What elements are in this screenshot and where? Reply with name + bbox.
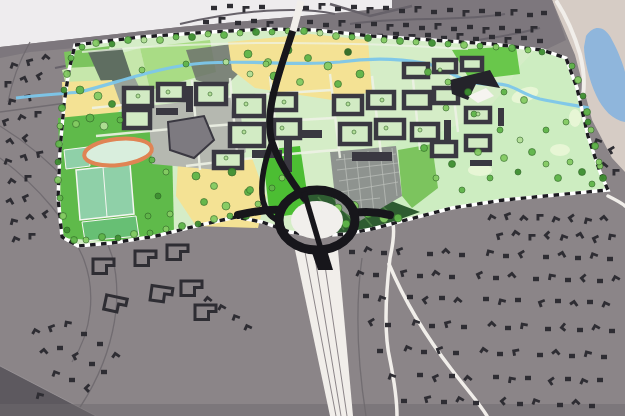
- model-tree: [57, 123, 63, 129]
- model-tree: [477, 43, 483, 49]
- existing-building-block: [373, 273, 379, 277]
- model-canvas: [0, 0, 625, 416]
- model-tree: [487, 175, 493, 181]
- existing-building-block: [575, 256, 581, 260]
- model-tree: [61, 87, 67, 93]
- courtyard-block: [124, 110, 150, 128]
- model-tree: [282, 100, 286, 104]
- existing-building-block: [479, 9, 485, 13]
- existing-building-block: [461, 325, 467, 329]
- meadow-spot: [550, 144, 570, 156]
- existing-building-block: [493, 375, 499, 379]
- existing-building-block: [441, 400, 447, 404]
- model-tree: [147, 230, 153, 236]
- courtyard-block: [376, 120, 404, 138]
- building-slab: [498, 108, 504, 126]
- model-tree: [166, 90, 170, 94]
- existing-building-block: [259, 5, 265, 9]
- existing-building-block: [421, 350, 427, 354]
- model-tree: [563, 119, 569, 125]
- model-tree: [221, 32, 228, 39]
- existing-building-block: [517, 402, 523, 406]
- model-tree: [71, 237, 78, 244]
- model-tree: [365, 35, 372, 42]
- existing-building-block: [97, 342, 103, 346]
- model-tree: [247, 71, 253, 77]
- model-tree: [443, 105, 449, 111]
- existing-building-block: [537, 39, 543, 43]
- model-tree: [155, 193, 161, 199]
- existing-building-block: [425, 33, 431, 37]
- model-tree: [476, 112, 480, 116]
- building-slab: [300, 130, 322, 138]
- board-front-edge: [0, 404, 625, 416]
- model-tree: [346, 102, 350, 106]
- existing-building-block: [569, 354, 575, 358]
- existing-building-block: [307, 20, 313, 24]
- existing-building-block: [227, 4, 233, 8]
- model-tree: [222, 202, 230, 210]
- building-slab: [444, 120, 451, 142]
- model-tree: [223, 59, 229, 65]
- existing-building-block: [557, 403, 563, 407]
- existing-building-block: [235, 21, 241, 25]
- courtyard-block: [158, 84, 184, 100]
- existing-building-block: [81, 332, 87, 336]
- model-tree: [192, 172, 200, 180]
- model-tree: [59, 105, 66, 112]
- model-tree: [580, 93, 586, 99]
- model-tree: [575, 77, 582, 84]
- model-tree: [585, 119, 591, 125]
- model-tree: [99, 234, 106, 241]
- model-tree: [136, 94, 140, 98]
- model-tree: [517, 137, 523, 143]
- existing-building-block: [495, 12, 501, 16]
- existing-building-block: [543, 255, 549, 259]
- model-tree: [269, 185, 275, 191]
- model-tree: [433, 175, 439, 181]
- existing-building-block: [101, 370, 107, 374]
- model-tree: [600, 175, 607, 182]
- existing-building-block: [303, 6, 309, 10]
- model-tree: [413, 39, 419, 45]
- existing-building-block: [349, 250, 355, 254]
- model-tree: [418, 128, 422, 132]
- existing-building-block: [607, 257, 613, 261]
- model-tree: [244, 102, 248, 106]
- model-tree: [201, 199, 208, 206]
- model-tree: [333, 33, 340, 40]
- model-tree: [525, 47, 531, 53]
- existing-building-block: [565, 377, 571, 381]
- model-tree: [117, 117, 123, 123]
- model-tree: [125, 37, 132, 44]
- model-tree: [459, 187, 465, 193]
- existing-building-block: [251, 19, 257, 23]
- model-tree: [584, 109, 591, 116]
- model-tree: [141, 37, 147, 43]
- model-tree: [224, 156, 228, 160]
- model-tree: [211, 216, 218, 223]
- existing-building-block: [371, 22, 377, 26]
- existing-building-block: [447, 8, 453, 12]
- existing-building-block: [335, 7, 341, 11]
- existing-building-block: [587, 300, 593, 304]
- model-tree: [596, 159, 602, 165]
- existing-building-block: [377, 349, 383, 353]
- existing-building-block: [451, 27, 457, 31]
- model-tree: [247, 187, 254, 194]
- model-tree: [56, 141, 63, 148]
- model-tree: [189, 34, 196, 41]
- existing-building-block: [453, 351, 459, 355]
- courtyard-block: [404, 64, 428, 77]
- model-tree: [211, 183, 218, 190]
- model-tree: [64, 71, 71, 78]
- existing-building-block: [533, 277, 539, 281]
- existing-building-block: [419, 26, 425, 30]
- model-tree: [244, 50, 252, 58]
- model-tree: [115, 235, 121, 241]
- model-tree: [475, 149, 482, 156]
- model-tree: [543, 161, 549, 167]
- model-tree: [139, 67, 145, 73]
- model-tree: [509, 45, 516, 52]
- model-tree: [55, 159, 61, 165]
- existing-building-block: [323, 23, 329, 27]
- model-tree: [579, 169, 586, 176]
- existing-building-block: [483, 297, 489, 301]
- existing-building-block: [527, 13, 533, 17]
- model-tree: [149, 157, 155, 163]
- existing-building-block: [363, 294, 369, 298]
- courtyard-block: [432, 142, 456, 156]
- model-tree: [445, 41, 451, 47]
- model-tree: [100, 122, 108, 130]
- model-tree: [157, 37, 164, 44]
- building-slab: [352, 152, 392, 161]
- model-tree: [208, 92, 212, 96]
- model-tree: [521, 97, 528, 104]
- model-tree: [195, 221, 201, 227]
- existing-building-block: [417, 373, 423, 377]
- model-tree: [317, 30, 323, 36]
- model-tree: [543, 127, 549, 133]
- model-tree: [445, 79, 451, 85]
- existing-building-block: [555, 299, 561, 303]
- model-tree: [179, 223, 186, 230]
- existing-building-block: [505, 326, 511, 330]
- model-tree: [592, 143, 599, 150]
- courtyard-block: [234, 96, 264, 116]
- model-tree: [356, 70, 364, 78]
- existing-building-block: [565, 278, 571, 282]
- model-tree: [76, 86, 84, 94]
- existing-building-block: [439, 296, 445, 300]
- site-model-photo: [0, 0, 625, 416]
- existing-building-block: [355, 24, 361, 28]
- existing-building-block: [473, 401, 479, 405]
- courtyard-block: [466, 136, 490, 150]
- model-tree: [501, 155, 508, 162]
- existing-building-block: [399, 9, 405, 13]
- existing-building-block: [541, 11, 547, 15]
- existing-building-block: [473, 37, 479, 41]
- model-tree: [381, 37, 387, 43]
- model-tree: [497, 127, 503, 133]
- courtyard-block: [274, 120, 300, 138]
- model-tree: [429, 40, 436, 47]
- model-tree: [228, 168, 236, 176]
- model-tree: [539, 49, 545, 55]
- existing-building-block: [69, 378, 75, 382]
- model-tree: [68, 55, 74, 61]
- existing-building-block: [57, 346, 63, 350]
- model-tree: [94, 92, 102, 100]
- existing-building-block: [459, 253, 465, 257]
- courtyard-block: [230, 124, 264, 146]
- model-tree: [55, 177, 62, 184]
- model-tree: [588, 127, 594, 133]
- model-tree: [131, 231, 138, 238]
- existing-building-block: [393, 32, 399, 36]
- model-tree: [237, 30, 243, 36]
- model-tree: [449, 161, 456, 168]
- model-tree: [555, 175, 562, 182]
- model-tree: [167, 211, 173, 217]
- existing-building-block: [203, 20, 209, 24]
- existing-building-block: [407, 295, 413, 299]
- model-tree: [345, 49, 352, 56]
- existing-building-block: [609, 329, 615, 333]
- model-tree: [205, 31, 211, 37]
- model-tree: [93, 40, 100, 47]
- model-tree: [335, 81, 342, 88]
- model-tree: [227, 213, 233, 219]
- model-tree: [384, 126, 388, 130]
- existing-building-block: [403, 23, 409, 27]
- existing-building-block: [449, 275, 455, 279]
- model-tree: [465, 89, 472, 96]
- model-tree: [73, 121, 80, 128]
- existing-building-block: [401, 399, 407, 403]
- existing-building-block: [597, 279, 603, 283]
- existing-building-block: [545, 327, 551, 331]
- courtyard-block: [434, 60, 456, 72]
- existing-building-block: [429, 324, 435, 328]
- model-tree: [305, 55, 312, 62]
- model-tree: [253, 29, 260, 36]
- model-tree: [297, 79, 304, 86]
- existing-building-block: [515, 298, 521, 302]
- existing-building-block: [431, 10, 437, 14]
- model-tree: [342, 220, 350, 228]
- model-tree: [567, 159, 573, 165]
- existing-building-block: [499, 26, 505, 30]
- model-tree: [145, 213, 151, 219]
- building-slab: [156, 108, 178, 115]
- model-tree: [397, 38, 404, 45]
- model-tree: [380, 98, 384, 102]
- model-tree: [109, 41, 115, 47]
- model-tree: [569, 63, 575, 69]
- model-tree: [589, 181, 595, 187]
- building-slab: [186, 86, 193, 112]
- existing-building-block: [449, 374, 455, 378]
- existing-building-block: [503, 254, 509, 258]
- existing-building-block: [489, 35, 495, 39]
- model-tree: [263, 61, 269, 67]
- model-tree: [269, 29, 275, 35]
- model-tree: [83, 237, 89, 243]
- model-tree: [109, 101, 116, 108]
- model-tree: [352, 130, 356, 134]
- existing-building-block: [381, 251, 387, 255]
- courtyard-block: [412, 124, 438, 140]
- model-tree: [64, 227, 70, 233]
- existing-building-block: [89, 362, 95, 366]
- model-tree: [301, 28, 308, 35]
- model-tree: [493, 44, 499, 50]
- existing-building-block: [577, 328, 583, 332]
- existing-building-block: [601, 355, 607, 359]
- courtyard-block: [214, 152, 242, 168]
- existing-building-block: [385, 323, 391, 327]
- existing-building-block: [417, 274, 423, 278]
- existing-building-block: [467, 25, 473, 29]
- model-tree: [438, 68, 442, 72]
- model-tree: [255, 201, 261, 207]
- model-tree: [461, 42, 468, 49]
- model-tree: [279, 175, 285, 181]
- existing-building-block: [497, 352, 503, 356]
- model-tree: [242, 130, 246, 134]
- existing-building-block: [521, 36, 527, 40]
- model-tree: [324, 62, 332, 70]
- model-tree: [280, 126, 284, 130]
- model-tree: [421, 145, 428, 152]
- model-tree: [163, 226, 169, 232]
- model-tree: [60, 213, 67, 220]
- existing-building-block: [383, 6, 389, 10]
- model-tree: [79, 44, 85, 50]
- model-tree: [425, 69, 432, 76]
- model-tree: [501, 89, 507, 95]
- model-tree: [183, 61, 189, 67]
- model-tree: [394, 214, 402, 222]
- meadow-spot: [569, 109, 581, 127]
- existing-building-block: [427, 252, 433, 256]
- existing-building-block: [537, 353, 543, 357]
- model-tree: [529, 149, 536, 156]
- model-tree: [57, 195, 63, 201]
- model-tree: [515, 169, 521, 175]
- existing-building-block: [515, 29, 521, 33]
- model-tree: [173, 34, 179, 40]
- building-slab: [470, 160, 492, 166]
- existing-building-block: [525, 376, 531, 380]
- model-tree: [163, 169, 169, 175]
- existing-building-block: [597, 378, 603, 382]
- existing-building-block: [589, 404, 595, 408]
- model-tree: [349, 34, 355, 40]
- existing-building-block: [211, 6, 217, 10]
- model-tree: [86, 114, 94, 122]
- existing-building-block: [493, 276, 499, 280]
- existing-building-block: [351, 5, 357, 9]
- courtyard-block: [462, 58, 482, 70]
- courtyard-block: [404, 92, 430, 108]
